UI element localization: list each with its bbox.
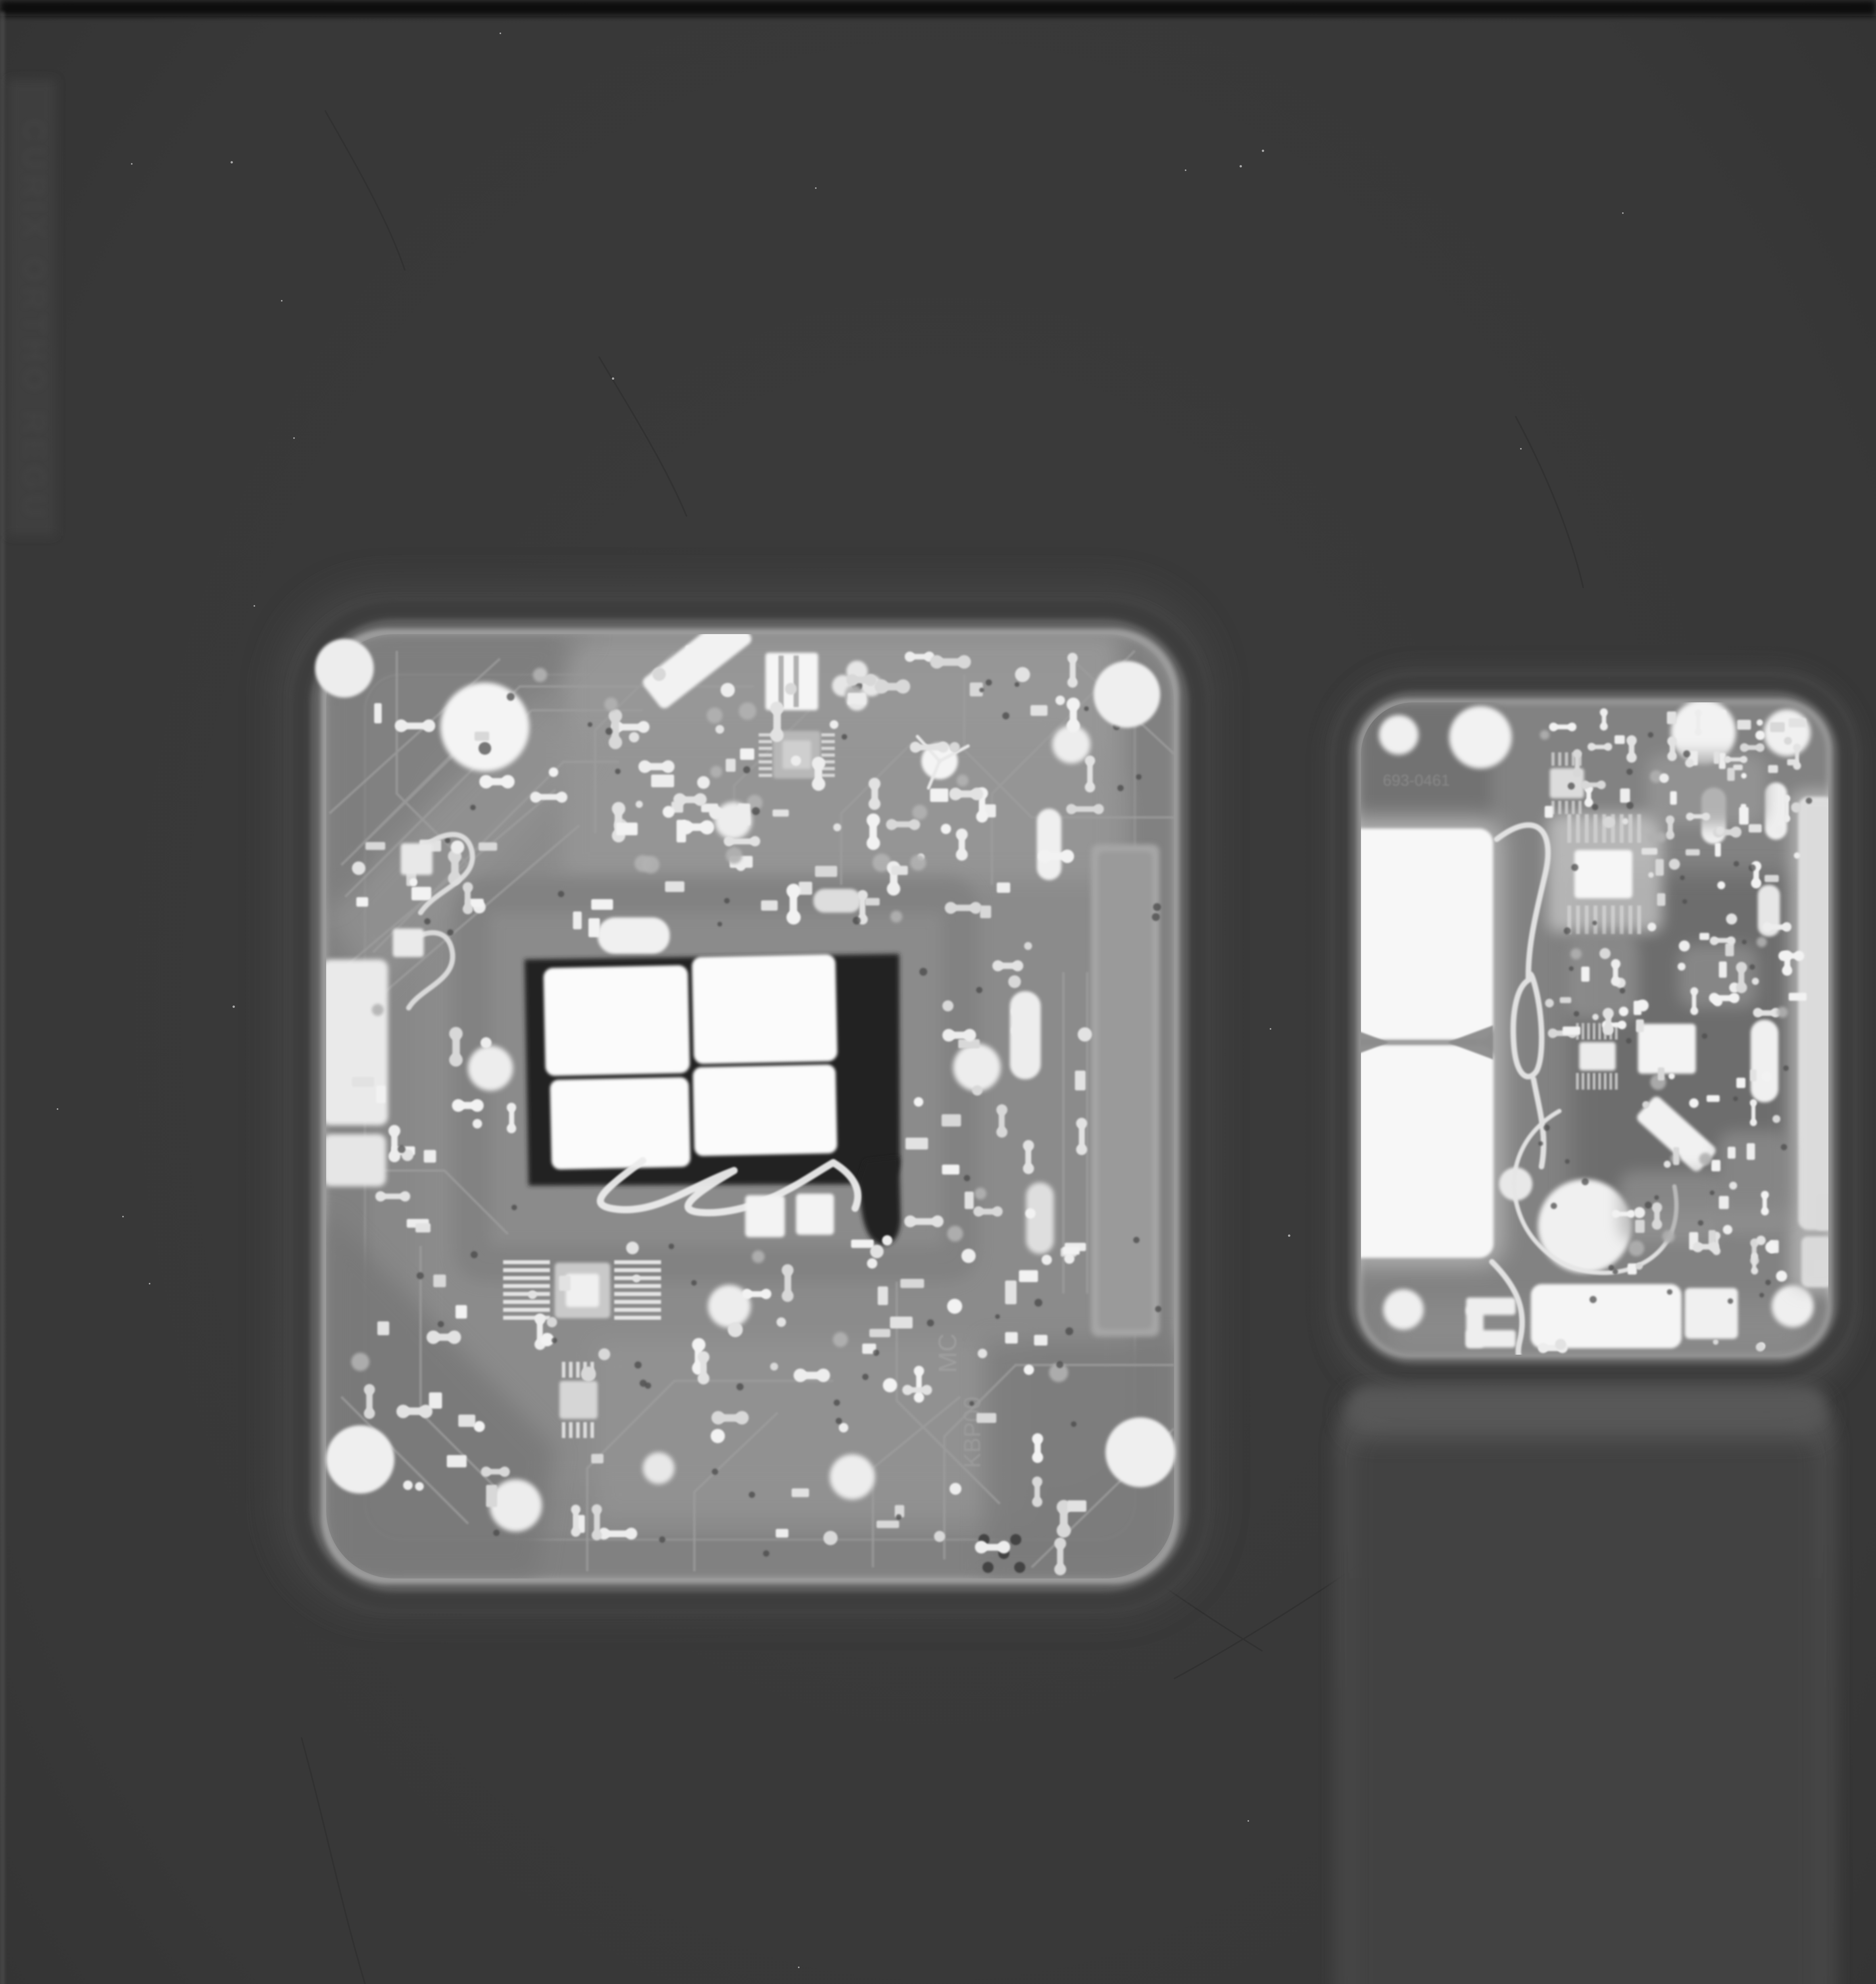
svg-text:KBP00: KBP00 <box>959 1396 985 1468</box>
svg-text:CURIX ORTHO REGU: CURIX ORTHO REGU <box>17 119 52 523</box>
svg-text:693-0461: 693-0461 <box>1383 772 1450 789</box>
svg-text:MC: MC <box>933 1333 962 1373</box>
